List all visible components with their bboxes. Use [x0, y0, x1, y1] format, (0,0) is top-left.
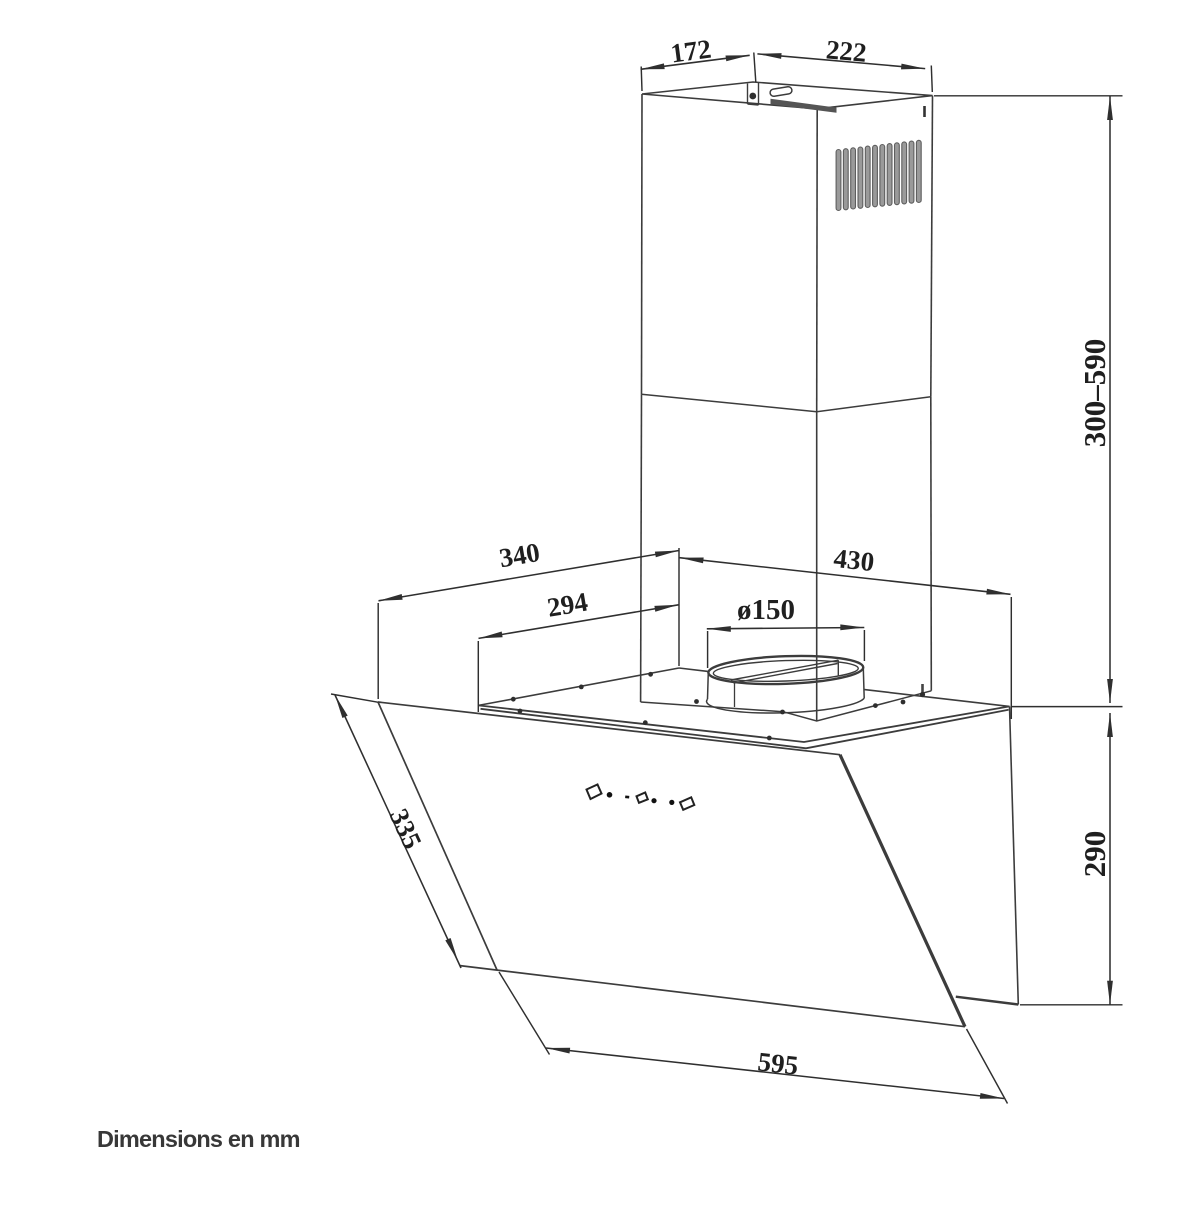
- svg-text:290: 290: [1077, 831, 1112, 878]
- svg-text:340: 340: [497, 537, 542, 573]
- svg-text:ø150: ø150: [737, 594, 795, 626]
- svg-text:Dimensions en mm: Dimensions en mm: [97, 1126, 300, 1152]
- svg-text:430: 430: [832, 543, 876, 577]
- svg-text:172: 172: [669, 34, 713, 69]
- svg-text:335: 335: [384, 804, 428, 853]
- svg-text:222: 222: [825, 34, 868, 67]
- svg-text:294: 294: [545, 586, 590, 622]
- svg-text:595: 595: [756, 1046, 800, 1080]
- svg-text:300–590: 300–590: [1077, 339, 1112, 448]
